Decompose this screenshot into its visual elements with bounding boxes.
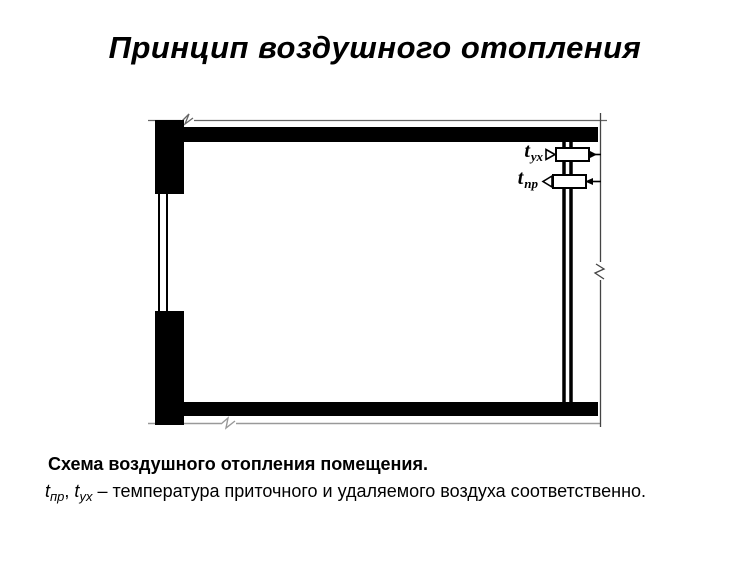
caption-rest-text: – температура приточного и удаляемого во… <box>92 481 646 501</box>
left-wall-upper-pier <box>155 120 184 194</box>
slide: Принцип воздушного отопления <box>0 0 750 561</box>
break-mark-bottom-icon <box>221 417 236 428</box>
supply-arrow-icon <box>585 178 601 185</box>
supply-temp-subscript: пр <box>524 176 538 191</box>
supply-temp-symbol-inline: tпр <box>45 481 64 501</box>
floor-wall <box>170 402 598 416</box>
left-wall-lower-pier <box>155 311 184 425</box>
window <box>159 194 167 311</box>
supply-temperature-label: tпр <box>485 168 538 194</box>
exhaust-flow-triangle-icon <box>546 150 555 160</box>
separator-text: , <box>64 481 74 501</box>
exhaust-arrow-icon <box>589 151 601 158</box>
exhaust-temperature-label: tух <box>490 141 543 167</box>
ceiling-wall <box>170 127 598 142</box>
supply-temp-symbol: t <box>518 167 524 189</box>
supply-flow-triangle-icon <box>543 176 552 187</box>
break-mark-right-icon <box>594 262 607 280</box>
exhaust-grille <box>556 148 589 161</box>
caption-description: tпр, tух – температура приточного и удал… <box>45 481 728 504</box>
exhaust-temp-subscript: ух <box>531 149 543 164</box>
exhaust-temp-symbol: t <box>524 140 530 162</box>
caption-heading: Схема воздушного отопления помещения. <box>48 454 728 475</box>
caption: Схема воздушного отопления помещения. tп… <box>48 454 728 504</box>
exhaust-temp-symbol-inline: tух <box>74 481 92 501</box>
supply-grille <box>553 175 586 188</box>
